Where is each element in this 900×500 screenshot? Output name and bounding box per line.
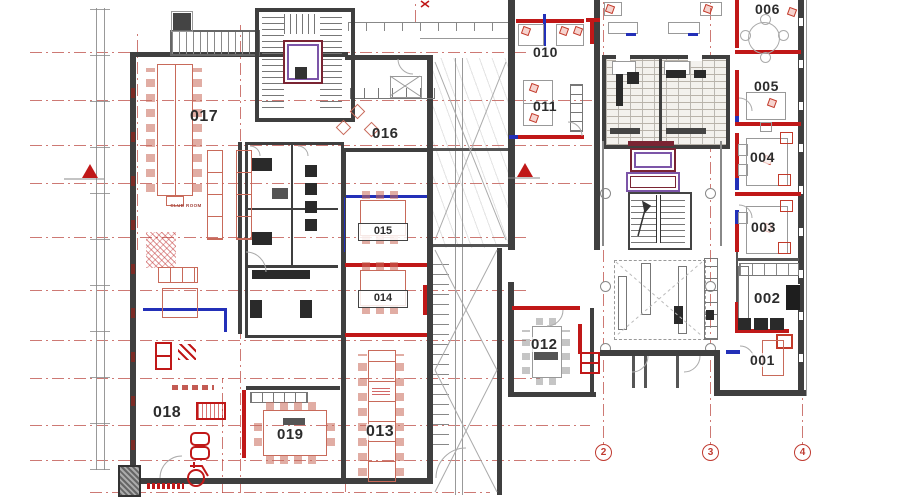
wall-012-red-v [578,324,582,354]
wall-col-left [735,70,739,116]
door-gap [688,55,702,61]
desk [641,263,651,315]
elevator-lintel [628,141,674,146]
desk [618,276,627,330]
sink-fixture [305,201,317,213]
grid-line-v [137,30,138,250]
round-table-006 [748,22,780,54]
lounge-table [162,288,198,318]
plant-decor [146,232,176,268]
chair [738,164,748,176]
chair-row [358,354,367,476]
toilet-divider [245,265,338,268]
wall-014-013 [345,333,427,337]
grid-bubble-2: 2 [595,444,612,461]
toilet-fixture [666,70,686,78]
chair [738,212,748,224]
sink-row [252,270,310,279]
stair-treads [262,14,284,108]
room-label-010: 010 [533,45,558,59]
gym-note-text [172,385,214,390]
wall-016-bottom [345,148,431,152]
glass-wall-018-v [224,308,227,332]
wall-019-top [246,386,340,390]
ramp-hatch-upper [433,58,508,248]
ramp-wall-right [497,248,502,495]
chair-row [362,191,402,199]
chair-circle [740,30,751,41]
toilet-divider-v [291,142,293,265]
exercise-bike [190,446,210,460]
sink-fixture [305,165,317,177]
corridor-divider [433,148,508,151]
treadmill [196,402,226,420]
wall-016-top [345,55,433,60]
chair-row [193,68,202,192]
chair [738,144,748,156]
chair-row [362,262,402,270]
room-label-019: 019 [277,427,304,442]
chair-glyph [787,7,797,17]
red-cross-mark [421,1,429,7]
toilet-fixture [694,70,706,78]
chair-row [395,354,404,476]
red-corner-unit [778,174,791,186]
room-label-012: 012 [531,337,558,352]
red-shelf-unit [580,352,600,374]
wc-fixture [252,232,272,245]
chair-row [266,402,322,410]
table-dark-band [534,352,558,360]
chair-row [536,378,556,385]
corridor-line [462,58,463,495]
door-blue [688,33,698,36]
door-blue [735,178,739,190]
cabinet [674,306,683,324]
canopy-edge [348,22,512,31]
toilet-fixture [627,72,639,84]
wall-012-left [508,282,514,396]
counter [610,128,640,134]
corridor-line [455,58,456,495]
wall-stub [676,356,679,388]
chair-circle [778,30,789,41]
room-label-014: 014 [358,290,408,308]
wall-012-top [512,306,580,310]
wall-col-left [735,0,739,48]
chair-row [254,420,262,446]
room-label-016: 016 [372,126,399,141]
dimension-ticks [90,8,110,470]
stair-treads [284,14,320,34]
wc-fixture [300,300,312,318]
chair-circle [760,52,771,63]
doormat [118,465,141,497]
room-label-006: 006 [755,2,780,16]
window-gaps [799,0,803,396]
exercise-bike [190,432,210,446]
wall-right-wing-left [508,0,515,250]
room-label-003: 003 [751,220,776,234]
conference-table-013 [368,350,396,482]
gym-machine [155,342,172,370]
room-label-004: 004 [750,150,775,164]
shelf-unit [207,150,223,240]
wall-004-003 [735,192,801,196]
stair-stringer [656,195,661,243]
grid-line-v [222,378,223,493]
wall-col-left [735,224,739,252]
room-label-015: 015 [358,223,408,241]
conference-table-017 [157,64,193,196]
core-elevator-2 [626,172,680,192]
facade-line [806,0,807,396]
stair-treads [631,195,656,243]
wall-window-ticks [131,52,135,484]
wall-010-top [516,19,584,23]
wall-red-segment [423,285,427,315]
column-marker [705,188,716,199]
elevator-door [295,67,307,79]
room-label-005: 005 [754,79,779,93]
chair-row [522,330,530,374]
elevator-shaft [283,40,323,84]
sofa [158,267,198,283]
ramp-ticks [433,255,449,445]
red-corner-unit [780,200,793,212]
stair-treads [660,195,685,243]
corridor-divider [433,244,508,247]
wall-019-left [242,390,246,458]
room-label-002: 002 [754,291,781,306]
open-office-outline [614,260,706,340]
exterior-stair [170,30,260,56]
grid-bubble-4: 4 [794,444,811,461]
chair-row [562,330,570,374]
table-dark-band [283,418,305,425]
grid-bubble-3: 3 [702,444,719,461]
wall-red-corner-v [590,18,594,44]
shelf-unit [236,150,252,240]
room-label-013: 013 [366,424,394,440]
stair-treads [320,14,342,108]
desk-005 [746,92,786,120]
room-label-001: 001 [750,353,775,367]
shelf-box [706,310,714,320]
grid-line-h [90,492,490,493]
sink-fixture [305,183,317,195]
sink-fixture [305,219,317,231]
chair [760,122,772,132]
wall-012-bottom [508,392,596,397]
appliance [770,318,784,330]
door-blue-001 [726,350,740,354]
chair-row [146,68,155,192]
red-corner-unit [778,242,791,254]
wall-bottom-1 [600,350,720,356]
floor-plan-canvas: 2 3 4 [0,0,900,500]
crossed-table-016 [390,76,422,98]
wall-stub [632,356,635,388]
gym-machine [178,344,196,360]
wc-fixture [250,300,262,318]
room-label-011: 011 [533,99,557,113]
elevator-car [630,176,676,188]
door-blue-011 [509,135,518,139]
chair-row [327,420,335,446]
toilet-fixture [616,74,623,106]
wall-003-002 [737,258,799,261]
core-elevator-1 [630,148,676,172]
fridge [786,284,800,310]
core-side-line [720,141,722,246]
wall-011-bottom [518,135,584,139]
counter [666,128,706,134]
elevator-car [634,152,672,168]
room-label-018: 018 [153,405,181,421]
room-label-017: 017 [190,109,218,125]
wall-stub [644,356,647,388]
decor-diamond [336,120,352,136]
red-corner-unit [780,132,793,144]
column-marker [600,281,611,292]
red-dashed-strip [147,483,184,489]
shelf-column [704,258,718,340]
door-blue [626,33,636,36]
appliance [754,318,768,330]
chimney-block [173,13,191,30]
canopy-edge-2 [420,38,512,39]
bookshelf-011 [570,84,583,132]
club-room-text: CLUB ROOM [162,203,210,208]
appliance [738,318,751,330]
core-side-line [602,141,604,246]
chair-row [536,318,556,325]
wall-core-left [594,0,600,250]
grid-line-v [415,0,416,22]
wc-fixture [252,158,272,171]
chair-row [266,456,322,464]
wall-bottom-2 [716,390,806,396]
core-divider [659,55,662,141]
table-text-013 [372,388,390,395]
wc-fixture [272,188,288,199]
